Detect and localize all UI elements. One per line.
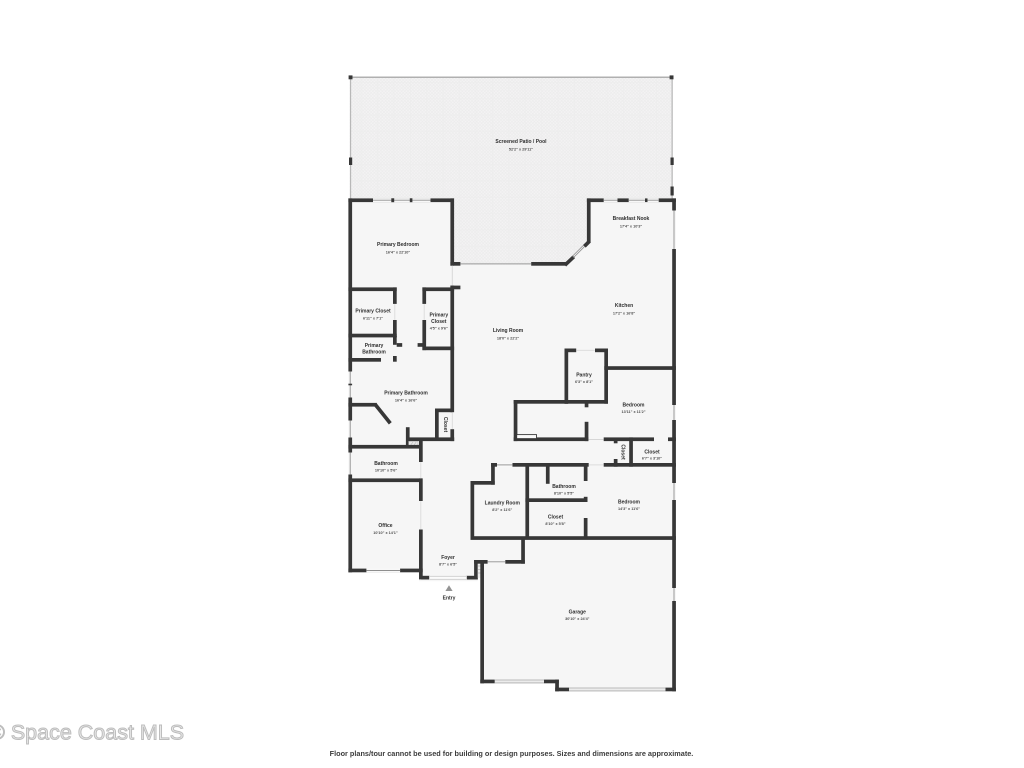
svg-text:4'5" x 9'6": 4'5" x 9'6" — [430, 327, 448, 331]
svg-text:Closet: Closet — [644, 449, 660, 455]
svg-text:Office: Office — [378, 523, 392, 529]
svg-text:Bathroom: Bathroom — [362, 350, 386, 356]
svg-text:14'3" x 11'6": 14'3" x 11'6" — [618, 507, 640, 511]
svg-text:Laundry Room: Laundry Room — [485, 500, 521, 506]
svg-text:Kitchen: Kitchen — [615, 303, 633, 309]
svg-text:10'10" x 5'6": 10'10" x 5'6" — [375, 469, 397, 473]
svg-text:16'4" x 22'10": 16'4" x 22'10" — [386, 250, 411, 254]
svg-text:10'10" x 14'1": 10'10" x 14'1" — [373, 531, 398, 535]
svg-text:8'2" x 11'6": 8'2" x 11'6" — [492, 508, 512, 512]
svg-text:17'4" x 10'3": 17'4" x 10'3" — [620, 224, 642, 228]
svg-text:Screened Patio / Pool: Screened Patio / Pool — [495, 139, 547, 145]
svg-text:Primary: Primary — [365, 343, 384, 349]
svg-text:17'2" x 16'8": 17'2" x 16'8" — [613, 311, 635, 315]
svg-text:6'11" x 7'1": 6'11" x 7'1" — [363, 316, 383, 320]
svg-text:Entry: Entry — [443, 596, 456, 602]
svg-text:8'10" x 5'5": 8'10" x 5'5" — [554, 491, 574, 495]
svg-text:Bedroom: Bedroom — [618, 499, 641, 505]
svg-text:6'3" x 8'1": 6'3" x 8'1" — [575, 380, 593, 384]
svg-text:Living Room: Living Room — [493, 328, 524, 334]
svg-text:Bathroom: Bathroom — [374, 461, 398, 467]
svg-text:© Space Coast MLS: © Space Coast MLS — [0, 721, 184, 745]
svg-text:Pantry: Pantry — [576, 372, 592, 378]
svg-text:Primary Bedroom: Primary Bedroom — [377, 242, 420, 248]
svg-text:Primary: Primary — [429, 312, 448, 318]
svg-text:30'10" x 24'4": 30'10" x 24'4" — [565, 617, 590, 621]
svg-text:18'0" x 22'2": 18'0" x 22'2" — [497, 336, 519, 340]
svg-text:Foyer: Foyer — [441, 555, 455, 561]
svg-text:16'4" x 16'6": 16'4" x 16'6" — [395, 398, 417, 402]
svg-text:Breakfast Nook: Breakfast Nook — [613, 216, 650, 222]
svg-text:Closet: Closet — [620, 444, 626, 460]
svg-text:Closet: Closet — [431, 319, 447, 325]
svg-text:8'7" x 6'5": 8'7" x 6'5" — [439, 563, 457, 567]
svg-text:Primary Bathroom: Primary Bathroom — [384, 390, 428, 396]
svg-text:Bathroom: Bathroom — [552, 484, 576, 490]
svg-text:52'2" x 29'11": 52'2" x 29'11" — [509, 148, 533, 152]
svg-text:Floor plans/tour cannot be use: Floor plans/tour cannot be used for buil… — [330, 749, 694, 758]
svg-text:13'11" x 11'2": 13'11" x 11'2" — [622, 410, 646, 414]
svg-text:Garage: Garage — [569, 609, 586, 615]
svg-text:8'10" x 5'8": 8'10" x 5'8" — [545, 522, 565, 526]
svg-text:Bedroom: Bedroom — [623, 402, 646, 408]
svg-text:Primary Closet: Primary Closet — [355, 308, 391, 314]
svg-text:Closet: Closet — [548, 514, 564, 520]
svg-text:Closet: Closet — [442, 417, 448, 433]
svg-text:6'7" x 3'10": 6'7" x 3'10" — [642, 457, 662, 461]
